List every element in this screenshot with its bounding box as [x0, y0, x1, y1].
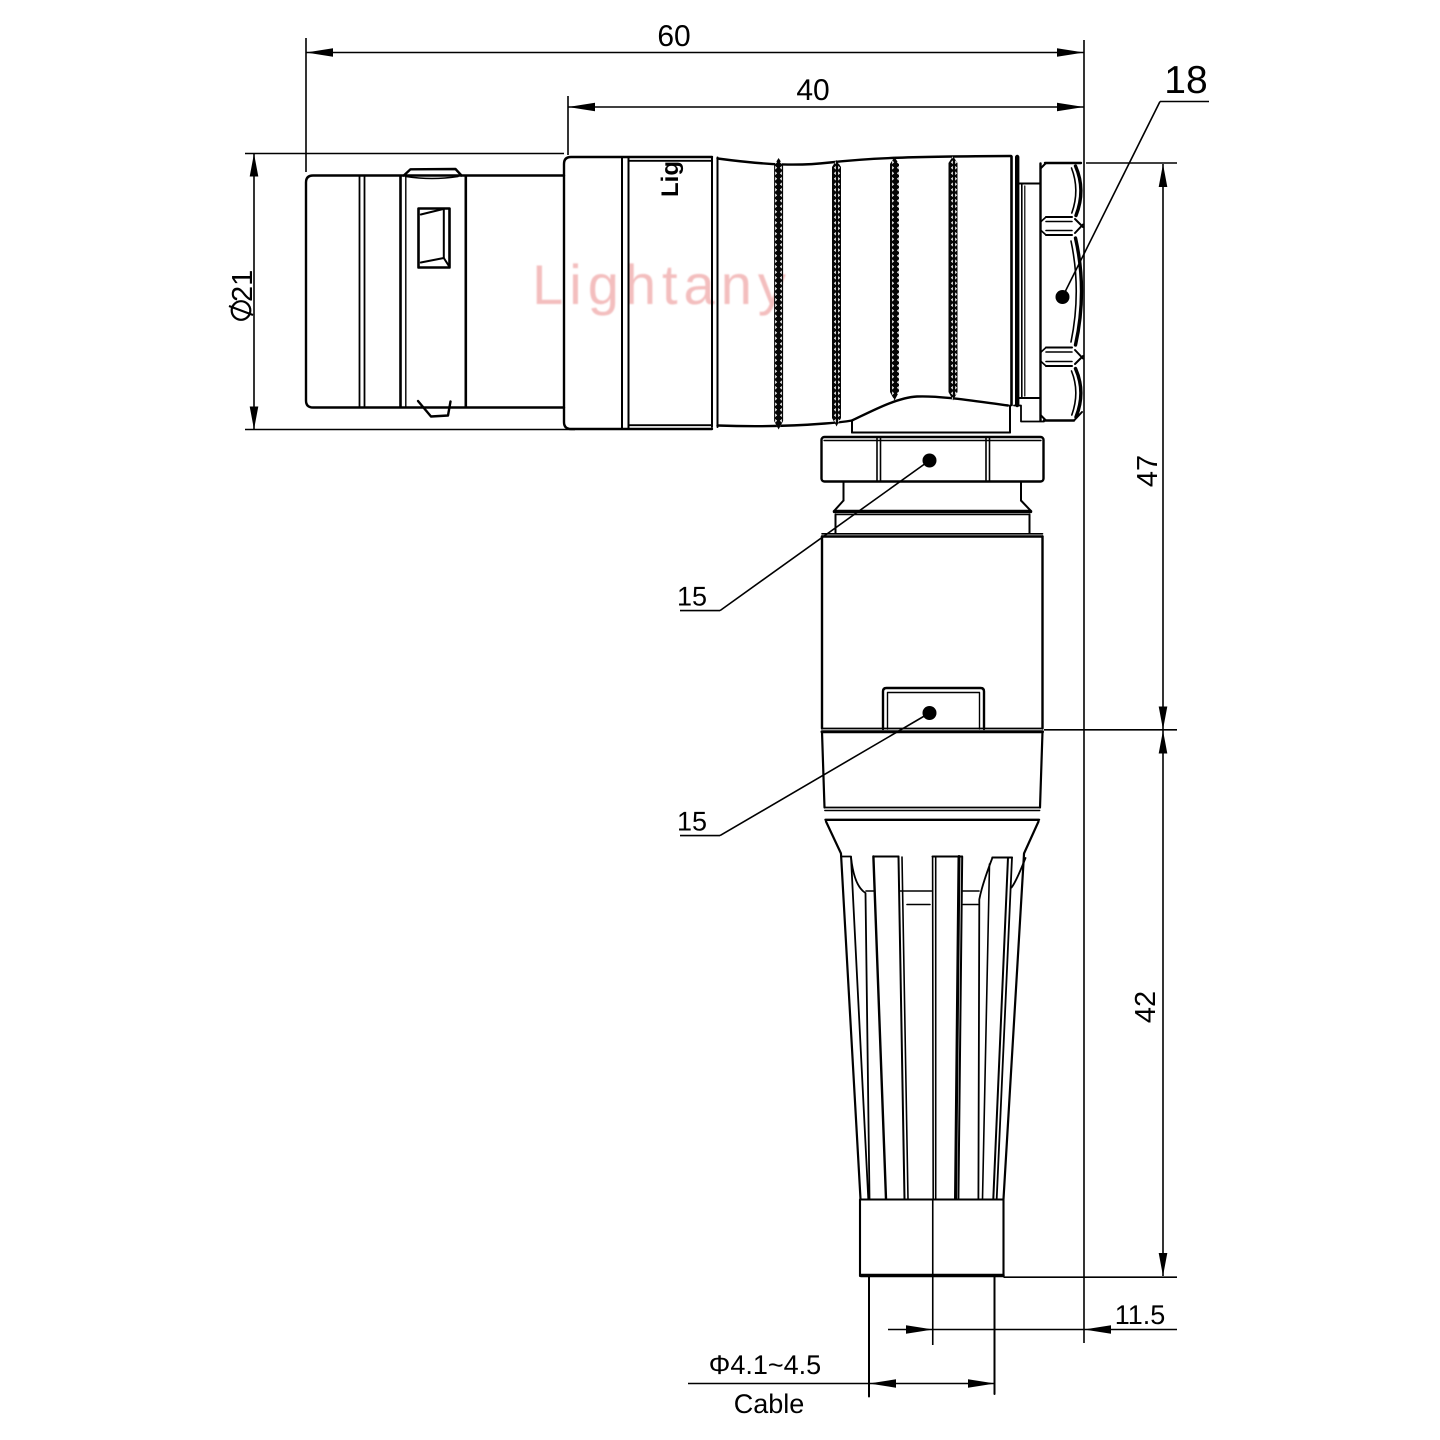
svg-text:15: 15	[677, 582, 707, 612]
svg-text:21: 21	[227, 270, 259, 302]
svg-text:Φ4.1~4.5: Φ4.1~4.5	[709, 1350, 821, 1380]
svg-text:Lightany: Lightany	[532, 253, 792, 316]
svg-text:Cable: Cable	[734, 1389, 805, 1419]
svg-text:47: 47	[1132, 455, 1164, 487]
svg-text:18: 18	[1164, 59, 1207, 102]
svg-text:Lig: Lig	[657, 161, 684, 197]
svg-text:40: 40	[796, 74, 829, 107]
svg-text:42: 42	[1130, 991, 1162, 1023]
svg-text:60: 60	[657, 20, 690, 53]
svg-text:11.5: 11.5	[1115, 1300, 1166, 1330]
svg-text:15: 15	[677, 807, 707, 837]
